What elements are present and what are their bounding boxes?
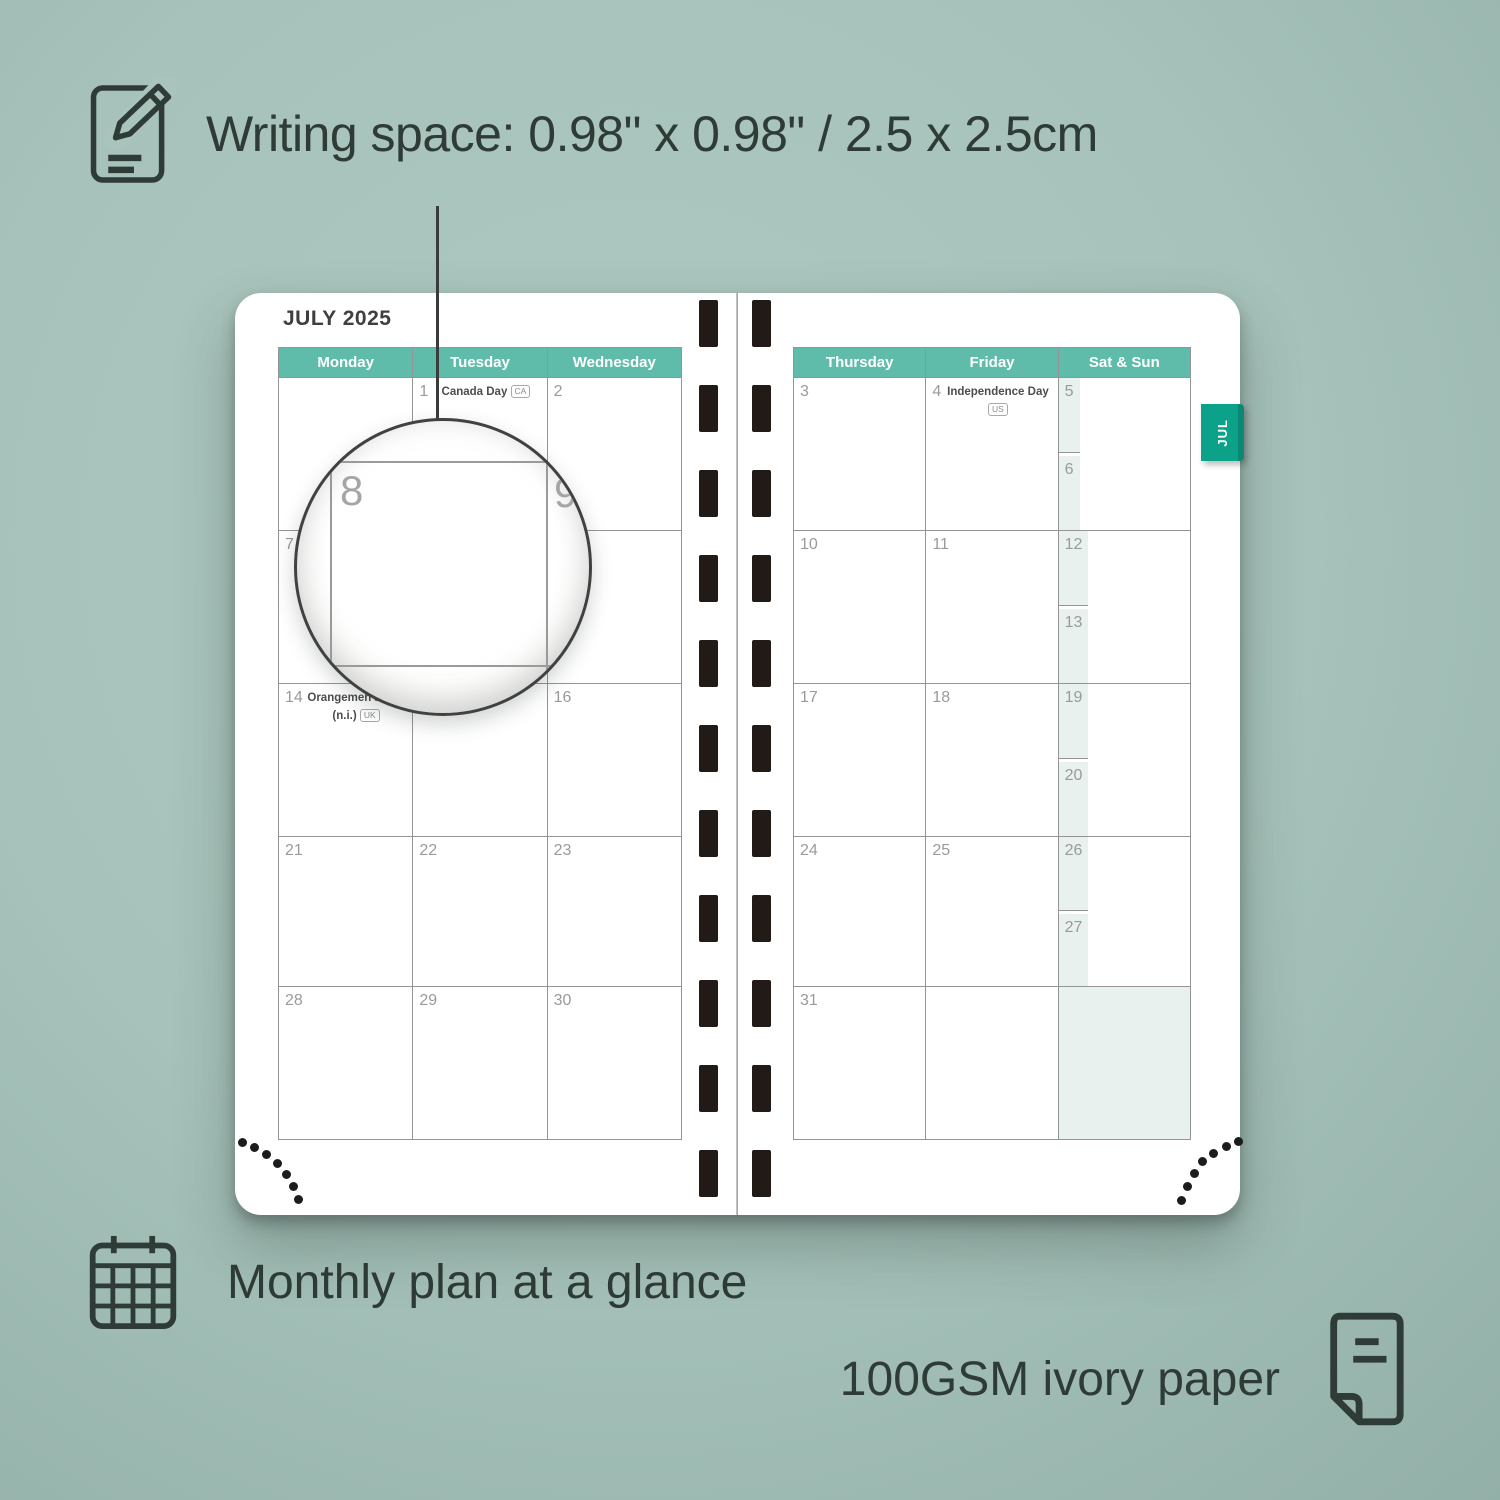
perforation-dot: [1190, 1169, 1199, 1178]
date-number: 7: [285, 536, 294, 554]
perforation-dot: [262, 1150, 271, 1159]
calendar-cell: 18: [926, 684, 1058, 837]
weekday-header: Monday: [279, 348, 413, 378]
calendar-cell: 16: [548, 684, 682, 837]
date-number: 21: [285, 842, 303, 860]
paper-sheet-icon: [1320, 1310, 1408, 1430]
weekend-cell: 2627: [1059, 837, 1191, 987]
perforation-dot: [1177, 1196, 1186, 1205]
binding-hole: [699, 385, 718, 432]
calendar-cell: 28: [279, 987, 413, 1140]
calendar-cell: 22: [413, 837, 547, 987]
binding-hole: [752, 640, 771, 687]
date-number: 5: [1065, 383, 1074, 400]
perforation-dot: [282, 1170, 291, 1179]
sunday-half: 13: [1059, 609, 1089, 683]
weekday-header: Tuesday: [413, 348, 547, 378]
binding-hole: [699, 1150, 718, 1197]
weekend-cell: 56: [1059, 378, 1191, 531]
date-number: 4: [932, 383, 941, 401]
date-number: 28: [285, 992, 303, 1010]
magnifier-circle: 8 9: [294, 418, 592, 716]
paper-spec-text: 100GSM ivory paper: [690, 1352, 1280, 1407]
date-number: 19: [1065, 689, 1083, 706]
binding-hole: [699, 470, 718, 517]
binding-hole: [752, 385, 771, 432]
calendar-cell: 23: [548, 837, 682, 987]
magnified-grid-line: [546, 461, 548, 713]
date-number: 24: [800, 842, 818, 860]
perforation-dot: [289, 1182, 298, 1191]
perforation-dot: [1183, 1182, 1192, 1191]
binding-hole: [752, 470, 771, 517]
calendar-cell: 31: [794, 987, 926, 1140]
calendar-cell: 4Independence Day US: [926, 378, 1058, 531]
sunday-half: 27: [1059, 914, 1089, 987]
holiday-label: Canada Day CA: [431, 383, 540, 402]
calendar-cell: 29: [413, 987, 547, 1140]
perforation-dot: [273, 1159, 282, 1168]
calendar-cell: 21: [279, 837, 413, 987]
binding-hole: [699, 980, 718, 1027]
date-number: 31: [800, 992, 818, 1010]
binding-hole: [699, 640, 718, 687]
calendar-cell: 30: [548, 987, 682, 1140]
weekend-cell: 1920: [1059, 684, 1191, 837]
date-number: 30: [554, 992, 572, 1010]
binding-hole: [752, 895, 771, 942]
saturday-half: 5: [1059, 378, 1080, 453]
calendar-cell: 10: [794, 531, 926, 684]
writing-space-text: Writing space: 0.98" x 0.98" / 2.5 x 2.5…: [206, 105, 1098, 163]
perforation-dot: [1234, 1137, 1243, 1146]
perforation-dot: [238, 1138, 247, 1147]
calendar-cell: 25: [926, 837, 1058, 987]
calendar-cell: 11: [926, 531, 1058, 684]
binding-hole: [752, 555, 771, 602]
sunday-half: 6: [1059, 456, 1080, 530]
binding-hole: [752, 300, 771, 347]
holiday-label: Independence Day US: [944, 383, 1051, 420]
binding-hole: [752, 980, 771, 1027]
calendar-cell: [926, 987, 1058, 1140]
calendar-cell: 17: [794, 684, 926, 837]
calendar-cell: 24: [794, 837, 926, 987]
weekday-header: Sat & Sun: [1059, 348, 1191, 378]
date-number: 23: [554, 842, 572, 860]
saturday-half: 26: [1059, 837, 1089, 911]
product-image: { "colors": { "background": "#a6c2ba", "…: [0, 0, 1500, 1500]
perforation-dot: [1222, 1142, 1231, 1151]
date-number: 1: [419, 383, 428, 401]
sunday-half: 20: [1059, 762, 1089, 836]
weekday-header: Friday: [926, 348, 1058, 378]
country-badge: US: [988, 403, 1008, 416]
date-number: 22: [419, 842, 437, 860]
month-tab-jul: JUL: [1201, 404, 1244, 461]
country-badge: CA: [511, 385, 531, 398]
writing-space-annotation: Writing space: 0.98" x 0.98" / 2.5 x 2.5…: [88, 78, 1098, 190]
calendar-cell: 3: [794, 378, 926, 531]
country-badge: UK: [360, 709, 380, 722]
date-number: 14: [285, 689, 303, 707]
month-title: JULY 2025: [283, 307, 391, 331]
binding-hole: [699, 810, 718, 857]
binding-hole: [752, 725, 771, 772]
annotation-pointer-line: [436, 206, 439, 422]
binding-hole: [752, 1150, 771, 1197]
binding-hole: [699, 300, 718, 347]
perforation-dot: [250, 1143, 259, 1152]
binding-hole: [699, 1065, 718, 1112]
perforation-dot: [1198, 1157, 1207, 1166]
date-number: 13: [1065, 614, 1083, 631]
binding-hole: [752, 1065, 771, 1112]
saturday-half: 12: [1059, 531, 1089, 606]
binding-hole: [752, 810, 771, 857]
right-page-month-grid: ThursdayFridaySat & Sun34Independence Da…: [793, 347, 1191, 1140]
magnified-date-number: 8: [340, 467, 363, 515]
perforation-dot: [1209, 1149, 1218, 1158]
weekend-cell: 1213: [1059, 531, 1191, 684]
binding-hole: [699, 895, 718, 942]
date-number: 17: [800, 689, 818, 707]
weekday-header: Wednesday: [548, 348, 682, 378]
date-number: 16: [554, 689, 572, 707]
date-number: 2: [554, 383, 563, 401]
date-number: 20: [1065, 767, 1083, 784]
notepad-pencil-icon: [88, 78, 180, 190]
weekday-header: Thursday: [794, 348, 926, 378]
month-tab-label: JUL: [1215, 419, 1230, 447]
magnified-grid-line: [330, 461, 332, 667]
binding-hole: [699, 725, 718, 772]
monthly-plan-annotation: Monthly plan at a glance: [85, 1234, 747, 1330]
monthly-plan-text: Monthly plan at a glance: [227, 1255, 747, 1310]
date-number: 12: [1065, 536, 1083, 553]
date-number: 25: [932, 842, 950, 860]
date-number: 6: [1065, 461, 1074, 478]
date-number: 11: [932, 536, 949, 554]
perforation-dot: [294, 1195, 303, 1204]
saturday-half: 19: [1059, 684, 1089, 759]
calendar-icon: [85, 1234, 181, 1330]
paper-icon-wrap: [1320, 1310, 1408, 1435]
page-seam: [736, 293, 738, 1215]
date-number: 26: [1065, 842, 1083, 859]
date-number: 27: [1065, 919, 1083, 936]
date-number: 10: [800, 536, 818, 554]
date-number: 18: [932, 689, 950, 707]
weekend-cell: [1059, 987, 1191, 1140]
date-number: 3: [800, 383, 809, 401]
binding-hole: [699, 555, 718, 602]
magnified-grid-line: [330, 665, 558, 667]
date-number: 29: [419, 992, 437, 1010]
magnified-date-number: 9: [554, 469, 577, 517]
